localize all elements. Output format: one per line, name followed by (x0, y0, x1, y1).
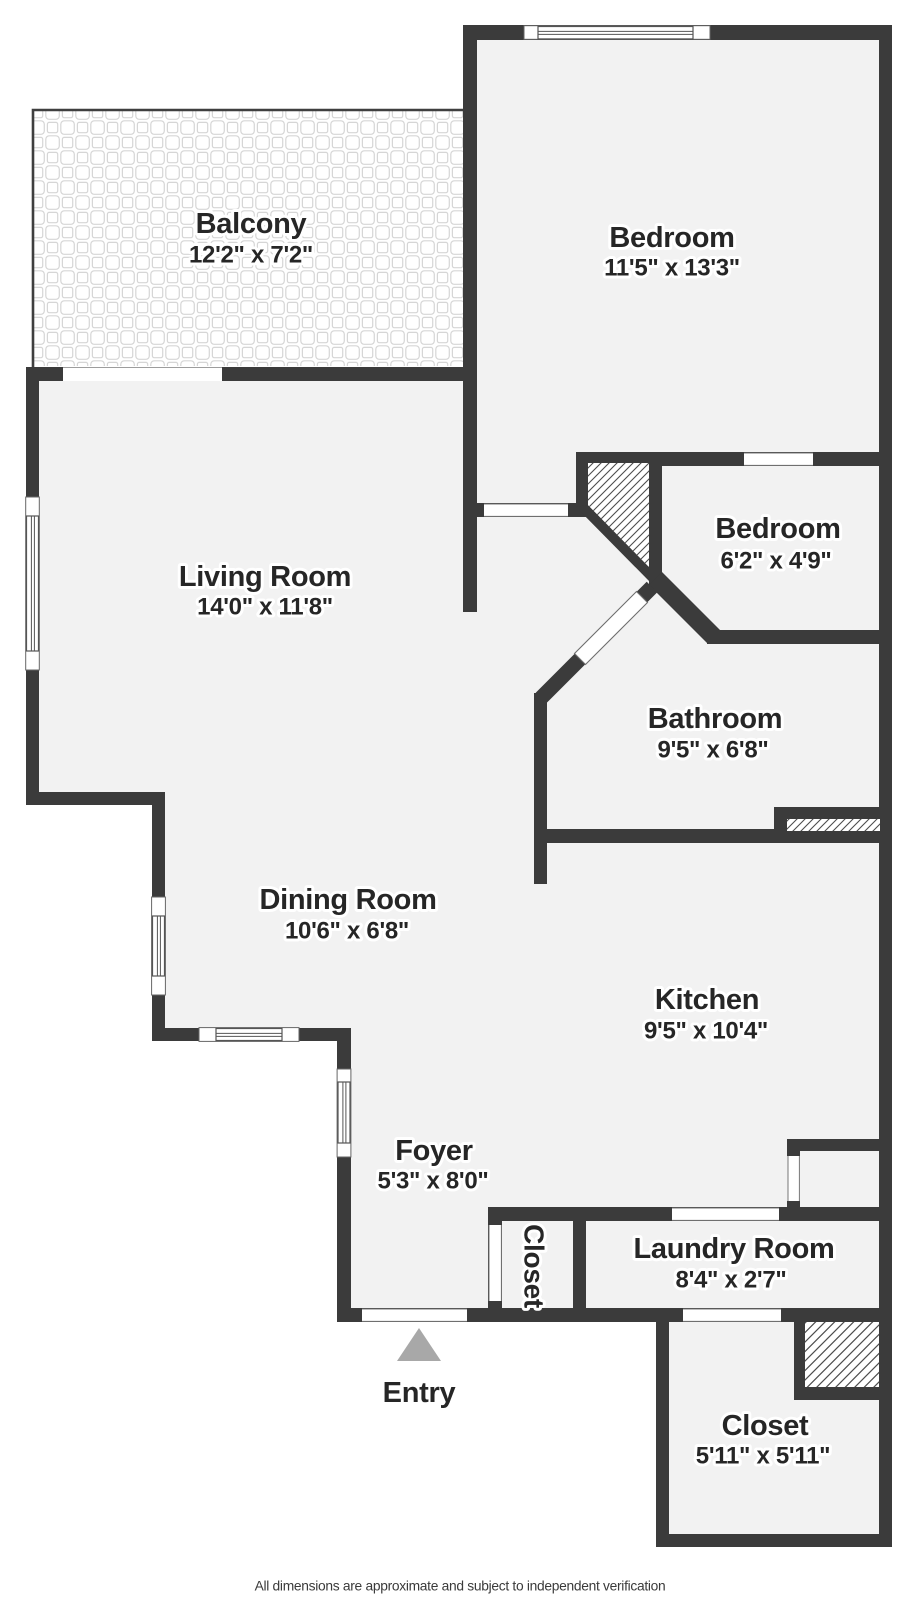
svg-text:11'5" x 13'3": 11'5" x 13'3" (604, 255, 740, 282)
svg-text:Laundry Room: Laundry Room (633, 1233, 834, 1265)
svg-text:Bedroom: Bedroom (715, 513, 840, 545)
svg-text:Balcony: Balcony (196, 208, 307, 240)
svg-text:Dining Room: Dining Room (259, 884, 436, 916)
svg-text:5'11" x 5'11": 5'11" x 5'11" (696, 1443, 830, 1470)
svg-text:9'5" x 6'8": 9'5" x 6'8" (658, 737, 769, 764)
svg-text:Foyer: Foyer (395, 1135, 472, 1167)
svg-text:8'4" x 2'7": 8'4" x 2'7" (676, 1267, 787, 1294)
svg-text:14'0" x 11'8": 14'0" x 11'8" (197, 594, 333, 621)
svg-text:Closet: Closet (519, 1224, 550, 1308)
svg-text:Bathroom: Bathroom (648, 703, 783, 735)
svg-text:12'2" x 7'2": 12'2" x 7'2" (189, 242, 313, 269)
svg-text:Closet: Closet (722, 1410, 809, 1442)
svg-text:10'6" x 6'8": 10'6" x 6'8" (285, 918, 409, 945)
svg-text:Entry: Entry (383, 1377, 456, 1409)
svg-text:9'5" x 10'4": 9'5" x 10'4" (644, 1018, 768, 1045)
svg-text:Living Room: Living Room (179, 561, 351, 593)
svg-text:All dimensions are approximate: All dimensions are approximate and subje… (255, 1579, 666, 1594)
svg-text:Kitchen: Kitchen (655, 984, 759, 1016)
svg-text:5'3" x 8'0": 5'3" x 8'0" (378, 1168, 489, 1195)
svg-text:Bedroom: Bedroom (609, 222, 734, 254)
svg-text:6'2" x 4'9": 6'2" x 4'9" (721, 548, 832, 575)
